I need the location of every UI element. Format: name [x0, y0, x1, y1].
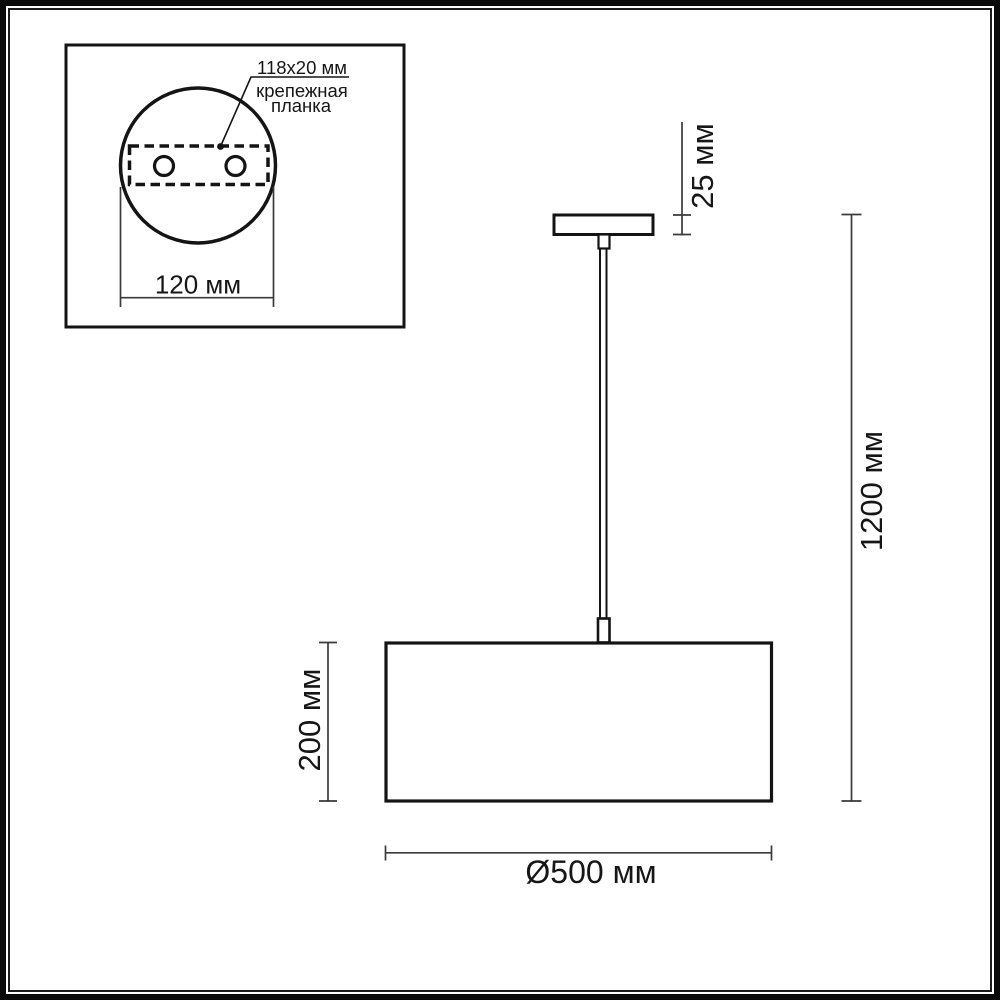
diagram-page: 118x20 мм крепежная планка 120 мм 25 мм — [0, 0, 1000, 1000]
canopy-connector — [599, 235, 610, 249]
dimension-canopy-height: 25 мм — [673, 122, 720, 236]
canopy-top-view-circle — [121, 88, 276, 243]
canopy-height-label: 25 мм — [685, 123, 720, 209]
mount-inset: 118x20 мм крепежная планка 120 мм — [66, 45, 404, 327]
mounting-plate-dashed-outline — [130, 146, 269, 185]
lamp-side-view — [386, 215, 772, 801]
dimension-shade-height: 200 мм — [292, 643, 337, 802]
lamp-shade — [386, 643, 772, 801]
canopy-diameter-label: 120 мм — [155, 270, 241, 300]
shade-diameter-label: Ø500 мм — [525, 854, 656, 890]
mounting-hole-left — [155, 157, 174, 176]
lamp-dimension-diagram: 118x20 мм крепежная планка 120 мм 25 мм — [0, 0, 1000, 1000]
shade-height-label: 200 мм — [292, 669, 327, 772]
mounting-plate-name-line2: планка — [271, 95, 332, 116]
mounting-hole-right — [226, 157, 245, 176]
suspension-rod — [600, 248, 607, 620]
overall-height-label: 1200 мм — [854, 431, 889, 551]
mounting-plate-size-label: 118x20 мм — [257, 57, 347, 78]
dimension-overall-height: 1200 мм — [842, 215, 890, 802]
dimension-shade-diameter: Ø500 мм — [386, 846, 772, 891]
rod-sleeve — [598, 619, 610, 643]
canopy — [554, 215, 653, 235]
